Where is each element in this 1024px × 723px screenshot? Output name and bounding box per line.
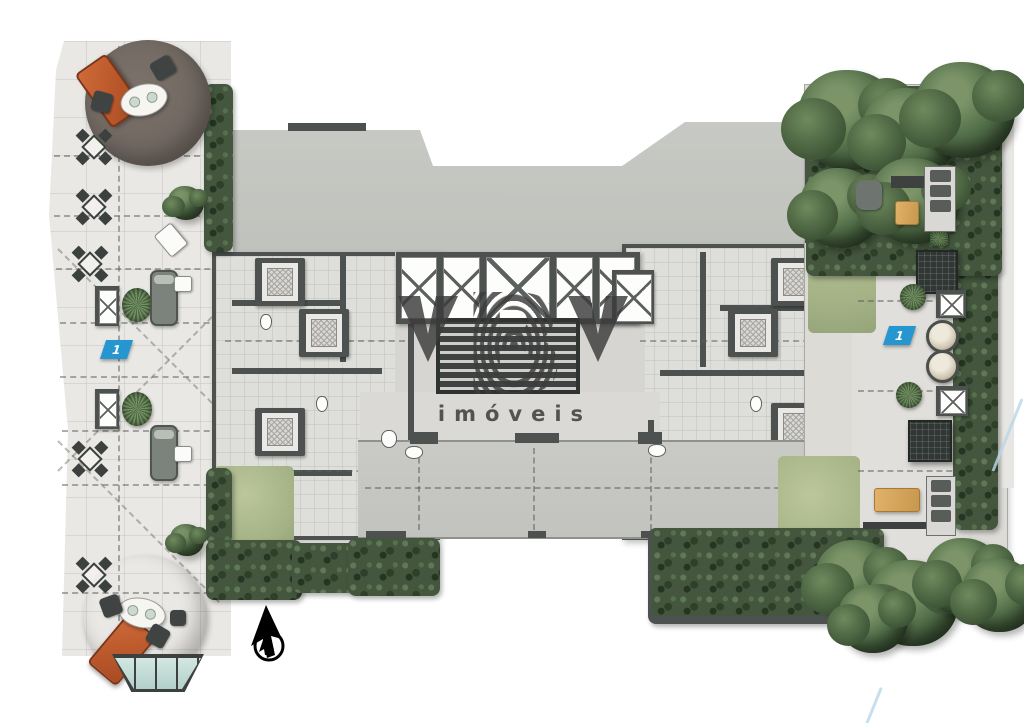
appliance: [931, 510, 951, 522]
elevator-core: [728, 309, 778, 357]
skylight: [936, 290, 966, 318]
level-marker-label: 1: [893, 329, 906, 343]
shrub: [900, 284, 926, 310]
pointer-cursor-icon: [245, 605, 295, 665]
side-chair: [174, 276, 192, 292]
planter-box: [930, 232, 948, 246]
hedge: [292, 543, 356, 593]
balcony-wall: [410, 432, 438, 444]
joint-line: [62, 430, 230, 432]
joint-line: [533, 448, 535, 530]
balcony-wall: [515, 433, 559, 443]
balcony-wall: [528, 531, 546, 538]
skylight-pane: [99, 290, 117, 324]
blue-swoosh-watermark: [864, 687, 883, 723]
side-table: [170, 610, 186, 626]
toilet-fixture: [648, 444, 666, 457]
skylight: [936, 386, 968, 416]
level-marker-label: 1: [110, 343, 123, 357]
logo-letter-v-right: [568, 296, 628, 362]
side-chair: [174, 446, 192, 462]
brand-watermark-text: imóveis: [390, 402, 640, 426]
garden-lounge-chair: [856, 180, 882, 210]
tree: [838, 585, 908, 653]
skylight-pane: [99, 393, 117, 427]
interior-wall: [232, 368, 382, 374]
joint-line: [858, 470, 962, 472]
palm-planter: [122, 288, 152, 322]
fire-pit-lounge: [908, 420, 952, 462]
wood-table: [895, 201, 919, 225]
hedge: [206, 540, 302, 600]
hanging-chair: [926, 320, 959, 353]
skylight: [95, 389, 119, 429]
joint-line: [60, 376, 230, 378]
barbecue-table: [874, 488, 920, 512]
floor-plan-image: 1 1: [0, 0, 1024, 723]
hanging-chair: [926, 350, 959, 383]
skylight: [95, 286, 119, 326]
tree: [962, 558, 1024, 632]
balcony-wall: [638, 432, 662, 444]
toilet-fixture: [260, 314, 272, 330]
bay-window-glass: [115, 658, 201, 689]
toilet-fixture: [381, 430, 397, 448]
outdoor-kitchen-counter: [924, 166, 956, 232]
plate: [144, 608, 157, 621]
plate: [128, 95, 141, 108]
balcony-wall: [366, 531, 406, 538]
elevator-core: [255, 258, 305, 306]
skylight-pane: [940, 294, 964, 316]
appliance: [931, 480, 951, 492]
shrub: [896, 382, 922, 408]
roof-slab: [233, 120, 805, 262]
toilet-fixture: [750, 396, 762, 412]
plate: [145, 91, 158, 104]
tree: [170, 524, 204, 556]
plate: [126, 604, 139, 617]
hedge: [206, 468, 232, 544]
parapet-wall: [288, 123, 366, 131]
palm-planter: [122, 392, 152, 426]
barbecue-counter: [926, 476, 956, 536]
elevator-core: [255, 408, 305, 456]
logo-letter-v-left: [398, 296, 458, 362]
hedge: [348, 538, 440, 596]
skylight-pane: [940, 390, 966, 414]
joint-line: [62, 484, 230, 486]
tree: [168, 186, 204, 220]
tree: [915, 62, 1015, 158]
joint-line: [418, 448, 420, 530]
appliance: [930, 185, 951, 197]
toilet-fixture: [405, 446, 423, 459]
elevator-core: [299, 309, 349, 357]
interior-wall: [700, 252, 706, 367]
appliance: [930, 200, 951, 212]
bay-window: [112, 654, 204, 692]
toilet-fixture: [316, 396, 328, 412]
joint-line: [650, 448, 652, 530]
appliance: [930, 170, 951, 182]
appliance: [931, 495, 951, 507]
